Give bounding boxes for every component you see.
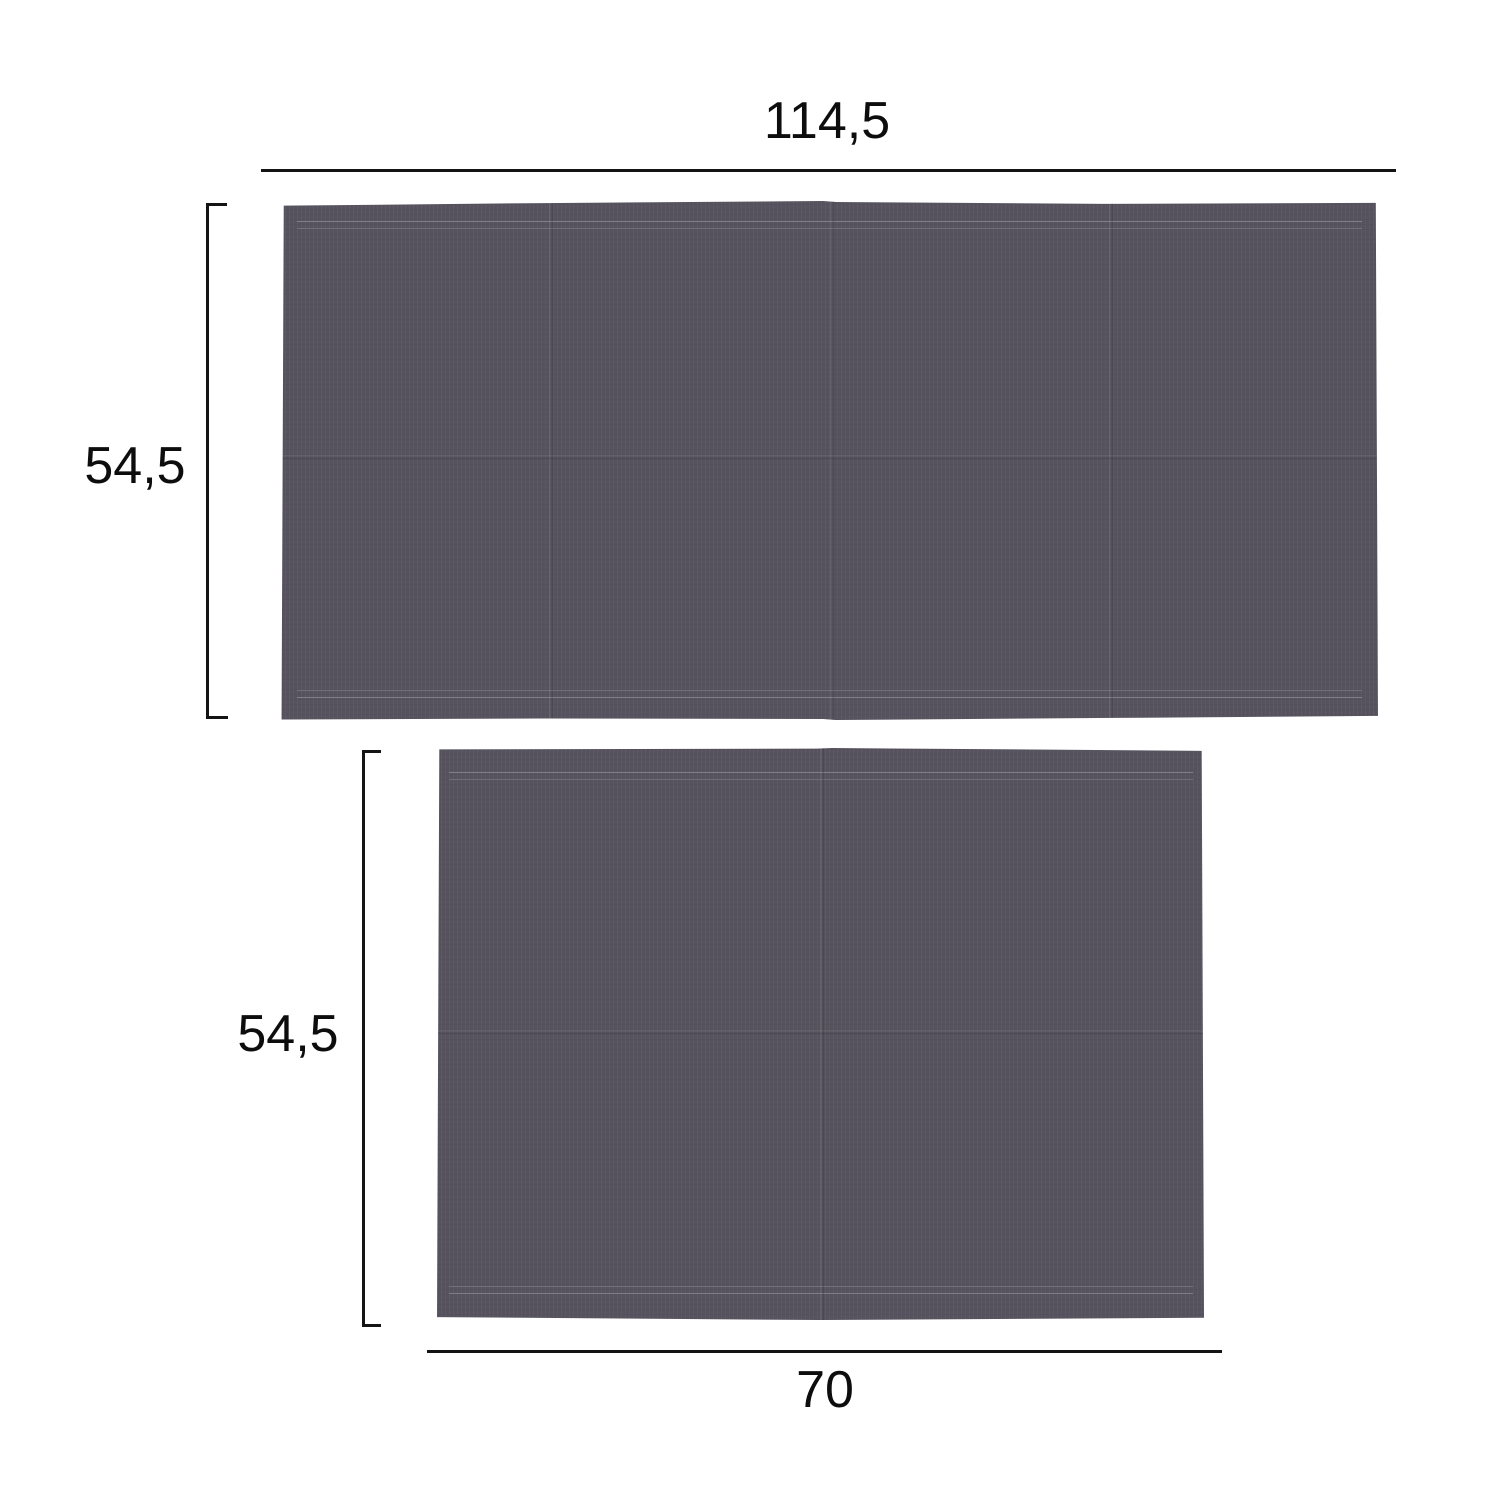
- dim-tick-top-small: [362, 750, 381, 753]
- fold-crease-horizontal: [437, 1030, 1204, 1034]
- dim-tick-bottom-small: [362, 1324, 381, 1327]
- width-label-large: 114,5: [764, 95, 890, 147]
- width-dimension-line-small: [427, 1350, 1222, 1353]
- dim-tick-top-large: [206, 203, 227, 206]
- width-label-small: 70: [796, 1364, 854, 1416]
- height-dimension-line-large: [206, 203, 209, 719]
- fold-crease-vertical-3: [1109, 201, 1113, 720]
- height-label-small: 54,5: [237, 1008, 338, 1060]
- fabric-panel-large: [281, 201, 1378, 720]
- dimension-diagram: 114,5 54,5 54,5 70: [0, 0, 1499, 1500]
- fold-crease-vertical: [820, 748, 824, 1320]
- dim-tick-bottom-large: [206, 716, 228, 719]
- fold-crease-vertical-1: [549, 201, 553, 720]
- width-dimension-line-large: [261, 169, 1396, 172]
- fold-crease-vertical-2: [830, 201, 834, 720]
- fold-crease-horizontal: [281, 455, 1378, 459]
- height-dimension-line-small: [362, 750, 365, 1327]
- height-label-large: 54,5: [84, 440, 185, 492]
- fabric-panel-small: [437, 748, 1204, 1320]
